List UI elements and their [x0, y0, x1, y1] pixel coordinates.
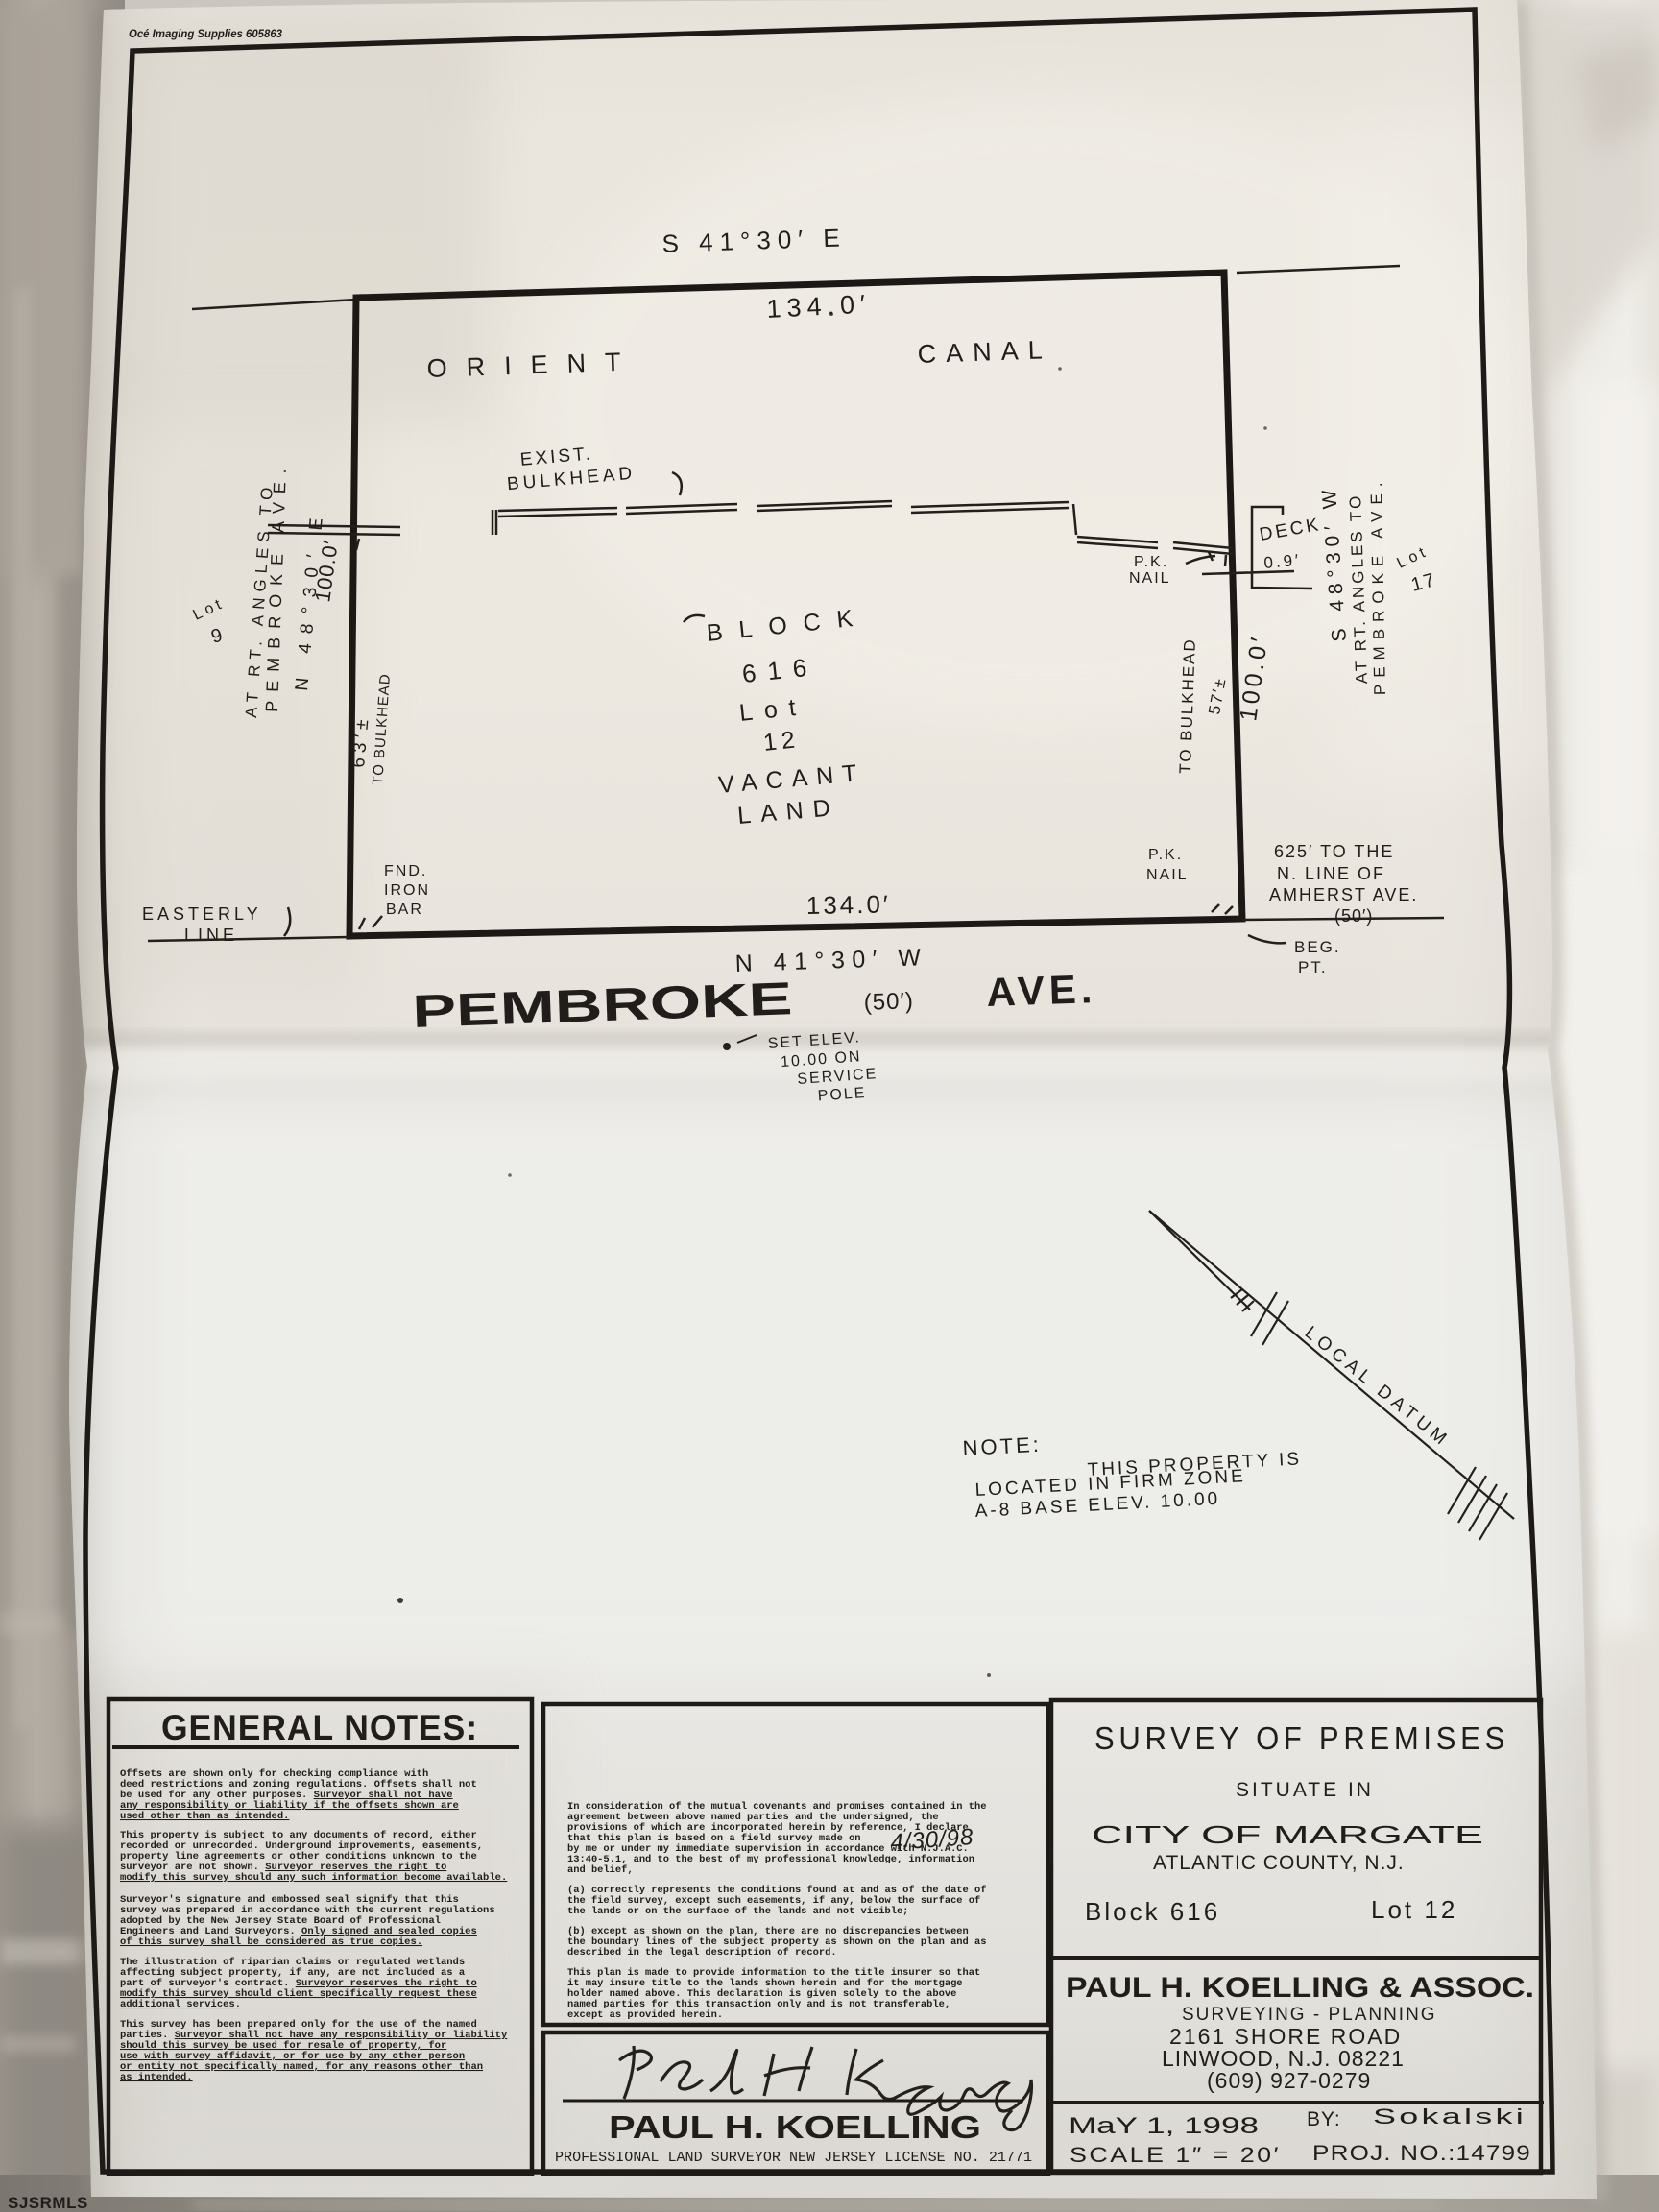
svg-text:GENERAL NOTES:: GENERAL NOTES:	[161, 1708, 478, 1747]
svg-text:AVE.: AVE.	[986, 966, 1097, 1015]
svg-text:Block 616: Block 616	[1085, 1897, 1220, 1926]
svg-text:additional services.: additional services.	[120, 1999, 241, 2010]
svg-text:PT.: PT.	[1298, 958, 1328, 976]
svg-text:BY:: BY:	[1307, 2108, 1341, 2130]
svg-text:(50′): (50′)	[1334, 906, 1373, 926]
svg-text:modify this survey should any: modify this survey should any such infor…	[120, 1872, 507, 1884]
svg-text:EASTERLY: EASTERLY	[142, 904, 262, 924]
svg-text:12: 12	[762, 726, 802, 757]
svg-text:P.K.: P.K.	[1148, 847, 1183, 863]
svg-text:NAIL: NAIL	[1146, 867, 1189, 883]
svg-text:SCALE 1″ = 20′: SCALE 1″ = 20′	[1070, 2143, 1281, 2167]
svg-text:and belief,: and belief,	[567, 1864, 634, 1876]
svg-text:ATLANTIC COUNTY, N.J.: ATLANTIC COUNTY, N.J.	[1153, 1852, 1405, 1874]
svg-text:LINE: LINE	[184, 926, 238, 945]
svg-text:NAIL: NAIL	[1129, 570, 1171, 587]
svg-text:134.0′: 134.0′	[766, 289, 872, 324]
svg-text:except as provided herein.: except as provided herein.	[567, 2009, 723, 2021]
svg-text:SURVEY OF PREMISES: SURVEY OF PREMISES	[1094, 1720, 1509, 1756]
svg-text:P.K.: P.K.	[1134, 554, 1168, 570]
svg-text:SJSRMLS: SJSRMLS	[8, 2194, 88, 2212]
svg-text:PROJ. NO.:14799: PROJ. NO.:14799	[1312, 2141, 1531, 2165]
svg-text:as intended.: as intended.	[120, 2072, 193, 2083]
svg-text:SITUATE IN: SITUATE IN	[1236, 1779, 1374, 1801]
svg-text:CANAL: CANAL	[917, 335, 1052, 369]
svg-text:(609) 927-0279: (609) 927-0279	[1207, 2068, 1371, 2093]
svg-text:of this survey shall be consid: of this survey shall be considered as tr…	[120, 1936, 422, 1948]
svg-text:CІTY OF MARGATE: CІTY OF MARGATE	[1092, 1820, 1483, 1849]
svg-text:the lands or on the surface of: the lands or on the surface of the lands…	[567, 1906, 908, 1917]
svg-text:Océ Imaging Supplies 605863: Océ Imaging Supplies 605863	[129, 29, 283, 40]
svg-text:AMHERST AVE.: AMHERST AVE.	[1269, 885, 1418, 904]
svg-text:NOTE:: NOTE:	[962, 1432, 1042, 1460]
svg-text:Ѕokalski: Ѕokalski	[1373, 2104, 1527, 2128]
svg-text:0.9′: 0.9′	[1263, 551, 1302, 572]
svg-text:625′ TO THE: 625′ TO THE	[1274, 842, 1394, 861]
svg-text:FND.: FND.	[384, 863, 427, 879]
svg-text:PROFESSIONAL LAND SURVEYOR NEW: PROFESSIONAL LAND SURVEYOR NEW JERSEY LI…	[555, 2151, 1032, 2166]
svg-text:134.0′: 134.0′	[806, 889, 891, 920]
svg-text:described in the legal descrip: described in the legal description of re…	[567, 1947, 837, 1959]
svg-text:N. LINE OF: N. LINE OF	[1277, 864, 1385, 883]
svg-text:MаY 1, 1998: MаY 1, 1998	[1069, 2113, 1259, 2139]
svg-text:SURVEYING - PLANNING: SURVEYING - PLANNING	[1182, 2005, 1437, 2025]
svg-text:Lot 12: Lot 12	[1371, 1895, 1457, 1924]
svg-text:PAUL H. KOELLING: PAUL H. KOELLING	[609, 2109, 981, 2145]
svg-text:used other than as intended.: used other than as intended.	[120, 1811, 289, 1822]
svg-text:PAUL H. KOELLING & ASSOC.: PAUL H. KOELLING & ASSOC.	[1066, 1972, 1534, 2004]
svg-text:BAR: BAR	[386, 902, 423, 918]
svg-text:PEMBROKE AVE.: PEMBROKE AVE.	[1367, 475, 1389, 695]
svg-text:IRON: IRON	[384, 882, 430, 899]
svg-text:BEG.: BEG.	[1294, 938, 1341, 956]
svg-text:(50′): (50′)	[863, 988, 914, 1016]
svg-text:POLE: POLE	[817, 1085, 867, 1104]
